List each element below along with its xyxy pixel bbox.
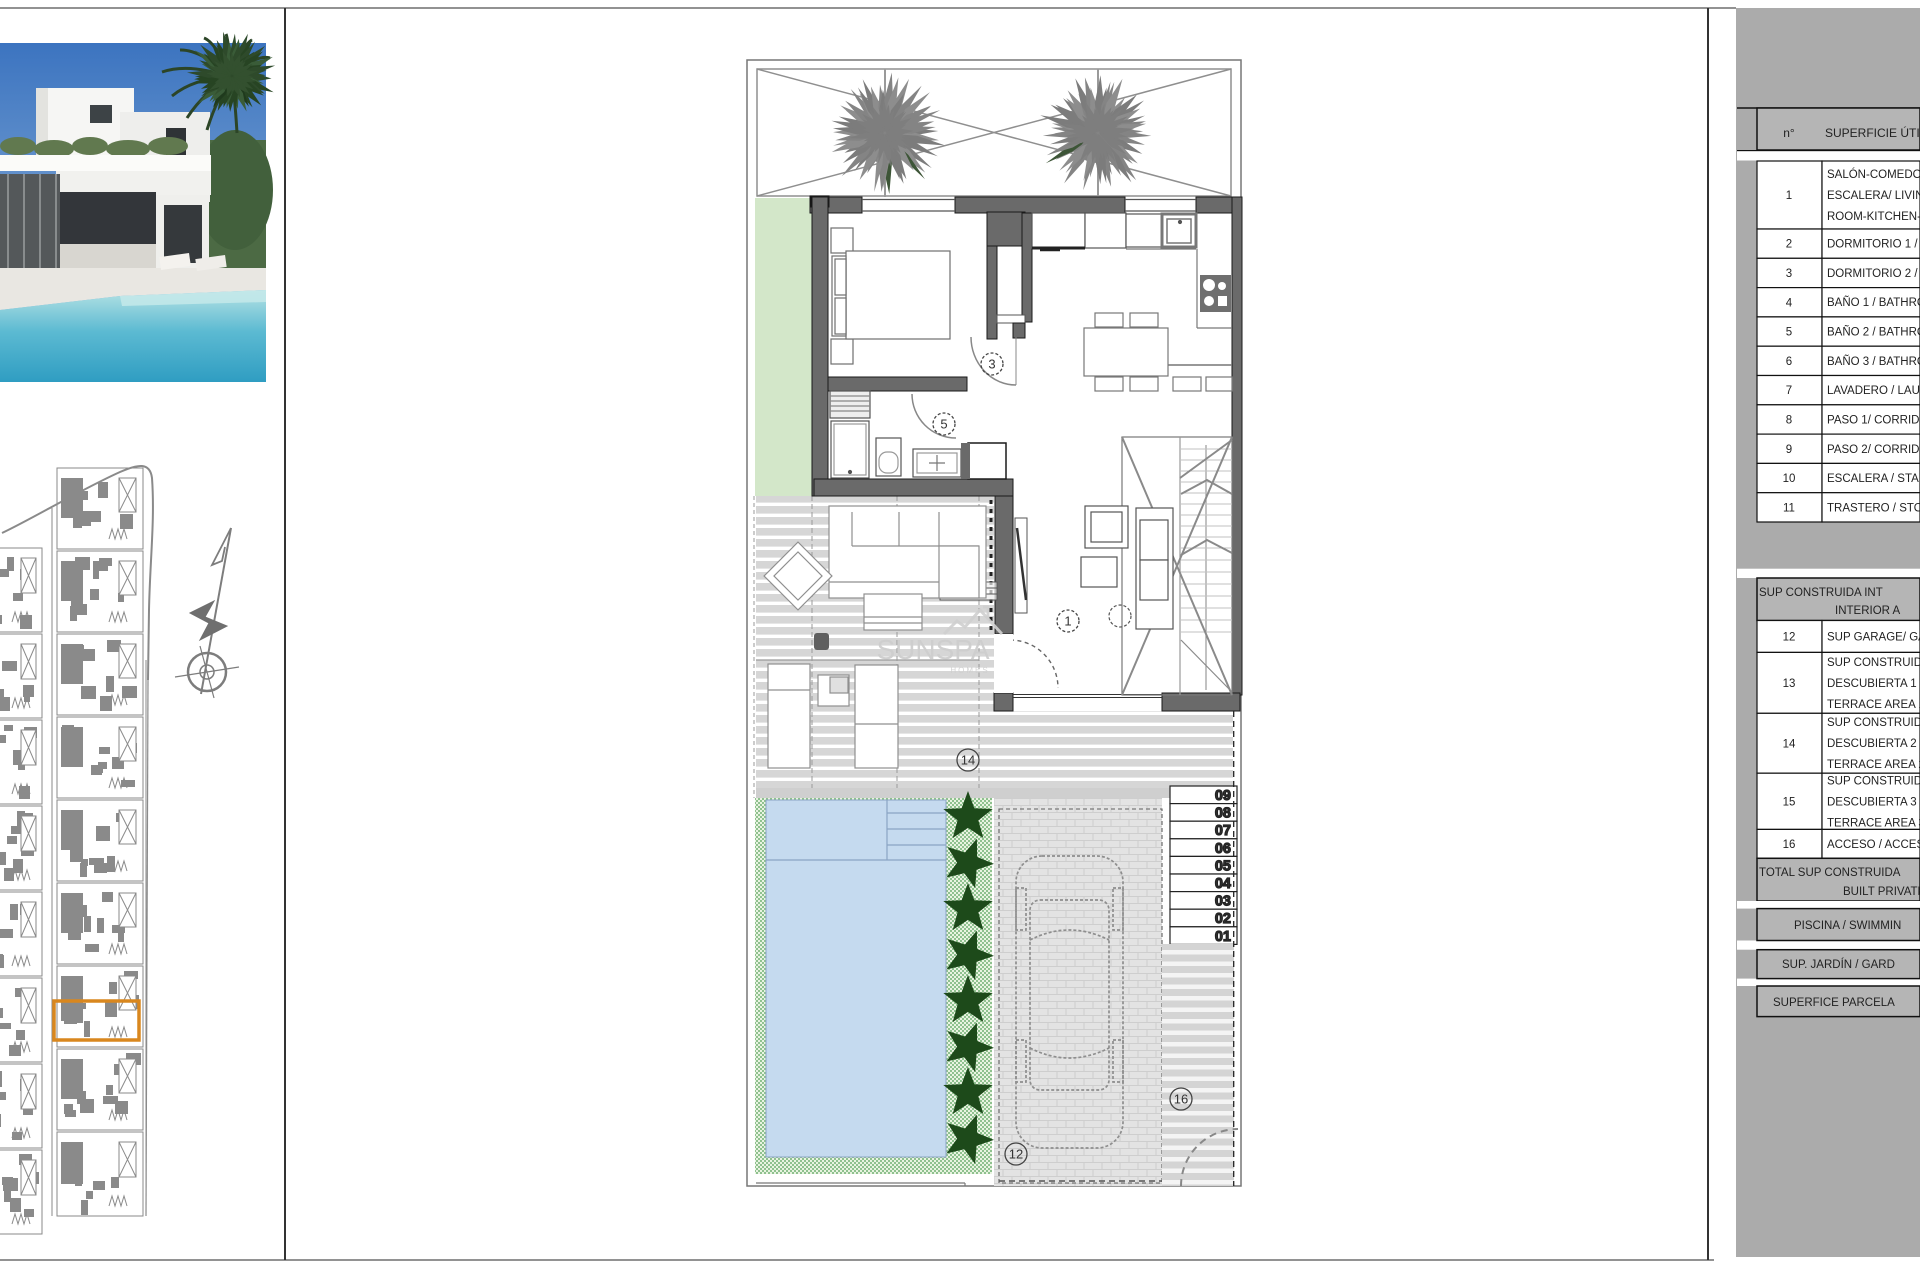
svg-text:BAÑO 3 / BATHRO: BAÑO 3 / BATHRO [1827, 355, 1920, 368]
svg-text:DESCUBIERTA 3 /: DESCUBIERTA 3 / [1827, 796, 1920, 808]
svg-text:11: 11 [1783, 502, 1795, 514]
svg-text:TRASTERO / STOR: TRASTERO / STOR [1827, 502, 1920, 514]
svg-text:1: 1 [1786, 190, 1792, 202]
svg-text:3: 3 [988, 357, 995, 372]
svg-text:9: 9 [1786, 444, 1792, 456]
svg-text:3: 3 [1786, 268, 1792, 280]
svg-text:TERRACE AREA 1: TERRACE AREA 1 [1827, 699, 1920, 711]
svg-text:ESCALERA / STAIR: ESCALERA / STAIR [1827, 473, 1920, 485]
svg-text:n°: n° [1783, 126, 1795, 140]
svg-text:6: 6 [1786, 356, 1792, 368]
svg-text:BAÑO 1 / BATHRO: BAÑO 1 / BATHRO [1827, 296, 1920, 309]
svg-text:PASO 1/ CORRIDO: PASO 1/ CORRIDO [1827, 415, 1920, 427]
svg-text:5: 5 [1786, 327, 1792, 339]
svg-text:05: 05 [1215, 858, 1231, 874]
svg-text:SUP. JARDÍN / GARD: SUP. JARDÍN / GARD [1782, 958, 1895, 971]
svg-text:INTERIOR A: INTERIOR A [1835, 605, 1901, 617]
svg-text:SUP CONSTRUIDA INT: SUP CONSTRUIDA INT [1759, 587, 1883, 599]
svg-text:4: 4 [1786, 297, 1793, 309]
svg-text:TERRACE AREA 2: TERRACE AREA 2 [1827, 759, 1920, 771]
svg-text:09: 09 [1215, 788, 1231, 804]
svg-text:01: 01 [1215, 929, 1231, 945]
svg-text:14: 14 [961, 753, 975, 768]
svg-text:12: 12 [1009, 1147, 1023, 1162]
svg-text:7: 7 [1786, 385, 1792, 397]
svg-text:TOTAL SUP CONSTRUIDA: TOTAL SUP CONSTRUIDA [1759, 867, 1901, 879]
svg-text:DORMITORIO 2 / BE: DORMITORIO 2 / BE [1827, 268, 1920, 280]
svg-text:SALÓN-COMEDOR-: SALÓN-COMEDOR- [1827, 168, 1920, 181]
svg-text:10: 10 [1783, 473, 1796, 485]
svg-text:12: 12 [1783, 631, 1796, 643]
svg-text:ROOM-KITCHEN-ST: ROOM-KITCHEN-ST [1827, 211, 1920, 223]
svg-text:06: 06 [1215, 841, 1231, 857]
svg-text:08: 08 [1215, 806, 1231, 822]
svg-text:ACCESO / ACCESS: ACCESO / ACCESS [1827, 839, 1920, 851]
svg-text:LAVADERO / LAUN: LAVADERO / LAUN [1827, 385, 1920, 397]
svg-text:02: 02 [1215, 911, 1231, 927]
svg-text:8: 8 [1786, 414, 1792, 426]
svg-text:5: 5 [940, 417, 947, 432]
svg-text:HOMES: HOMES [950, 666, 989, 675]
svg-text:SUPERFICE PARCELA: SUPERFICE PARCELA [1773, 997, 1895, 1009]
svg-text:TERRACE AREA 3: TERRACE AREA 3 [1827, 817, 1920, 829]
svg-text:2: 2 [1786, 239, 1792, 251]
svg-text:03: 03 [1215, 894, 1231, 910]
svg-text:16: 16 [1174, 1092, 1188, 1107]
svg-text:SUP GARAGE/ GAR: SUP GARAGE/ GAR [1827, 632, 1920, 644]
svg-text:ESCALERA/ LIVING-: ESCALERA/ LIVING- [1827, 190, 1920, 202]
svg-text:BAÑO 2 / BATHRO: BAÑO 2 / BATHRO [1827, 326, 1920, 339]
svg-text:SUP CONSTRUIDA: SUP CONSTRUIDA [1827, 775, 1920, 787]
svg-text:SUP CONSTRUIDA: SUP CONSTRUIDA [1827, 657, 1920, 669]
svg-text:PISCINA / SWIMMIN: PISCINA / SWIMMIN [1794, 920, 1901, 932]
svg-text:DORMITORIO 1 / BE: DORMITORIO 1 / BE [1827, 239, 1920, 251]
svg-text:PASO 2/ CORRIDO: PASO 2/ CORRIDO [1827, 444, 1920, 456]
svg-text:SUNSPA: SUNSPA [876, 634, 989, 665]
svg-text:DESCUBIERTA 2 /: DESCUBIERTA 2 / [1827, 738, 1920, 750]
svg-text:SUPERFICIE ÚTIL: SUPERFICIE ÚTIL [1825, 125, 1920, 140]
svg-text:14: 14 [1783, 738, 1796, 750]
svg-text:15: 15 [1783, 796, 1796, 808]
svg-text:04: 04 [1215, 876, 1231, 892]
svg-text:BUILT PRIVATE: BUILT PRIVATE [1843, 886, 1920, 898]
svg-text:SUP CONSTRUIDA: SUP CONSTRUIDA [1827, 717, 1920, 729]
svg-text:16: 16 [1783, 839, 1796, 851]
svg-text:13: 13 [1783, 678, 1796, 690]
svg-text:DESCUBIERTA 1 /: DESCUBIERTA 1 / [1827, 678, 1920, 690]
svg-text:1: 1 [1064, 614, 1071, 629]
svg-text:07: 07 [1215, 823, 1231, 839]
